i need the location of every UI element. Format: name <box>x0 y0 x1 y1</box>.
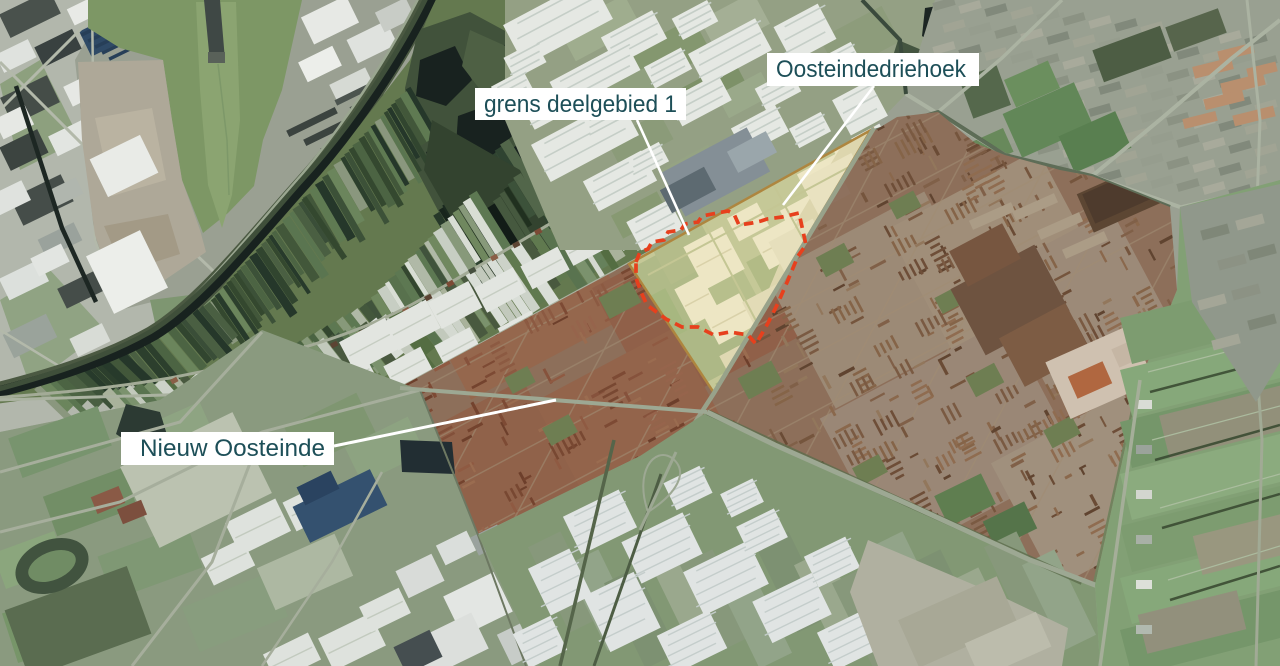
svg-text:Nieuw Oosteinde: Nieuw Oosteinde <box>140 435 325 462</box>
svg-text:grens deelgebied 1: grens deelgebied 1 <box>484 91 677 118</box>
svg-text:Oosteindedriehoek: Oosteindedriehoek <box>776 56 967 83</box>
